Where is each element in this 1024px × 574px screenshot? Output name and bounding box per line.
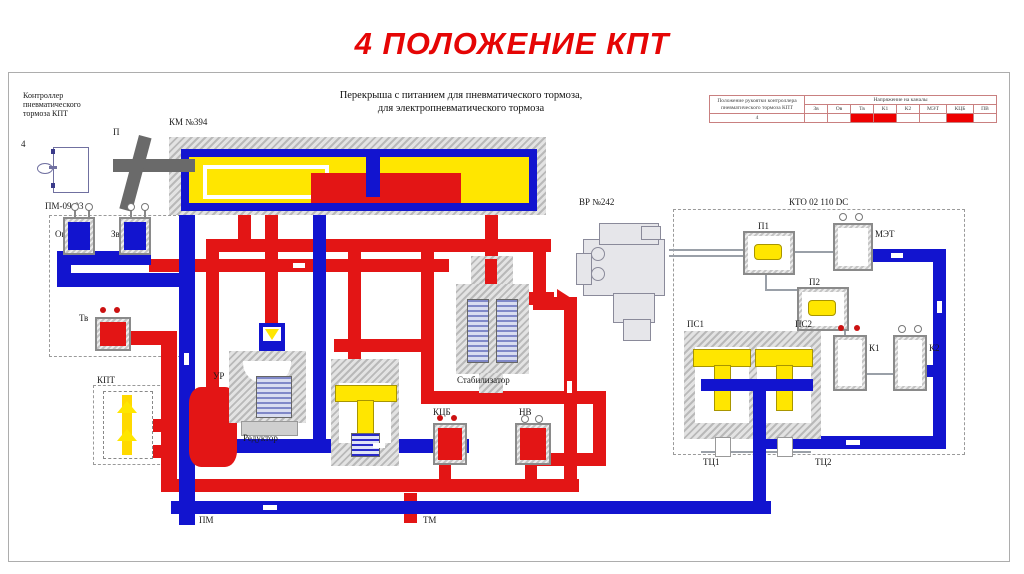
signal-line [789, 251, 835, 253]
valve-cap [127, 203, 135, 211]
pipe-segment [161, 331, 177, 492]
flow-tick [184, 353, 189, 365]
diagram-subtitle: Перекрыша с питанием для пневматического… [296, 89, 626, 115]
ur-label: УР [213, 371, 224, 381]
relay-piston-stem [357, 400, 374, 434]
valve-core [124, 222, 146, 250]
km394-red-channel [311, 173, 461, 203]
ps2-label: ПС2 [795, 319, 812, 329]
reduktor-spring [256, 376, 292, 418]
controller-caption: Контроллер пневматического тормоза КПТ [23, 91, 81, 119]
stabilizer-spring [496, 299, 518, 363]
p1-label: П1 [758, 221, 769, 231]
valve-core [100, 322, 126, 346]
valve-core [68, 222, 90, 250]
valve-core [438, 428, 462, 460]
signal-line [864, 373, 896, 375]
p2-spool [808, 300, 836, 316]
k1-label: К1 [869, 343, 880, 353]
flow-tick [937, 301, 942, 313]
pipe-segment-pm-main [171, 501, 771, 514]
valve-core [838, 228, 868, 266]
position-digit: 4 [21, 139, 26, 149]
valve-cap [839, 213, 847, 221]
pipe-segment [564, 297, 577, 492]
valve-core [838, 340, 862, 386]
p2-label: П2 [809, 277, 820, 287]
slide: 4 ПОЛОЖЕНИЕ КПТ Контроллер пневматическо… [0, 0, 1024, 574]
signal-line [765, 289, 799, 291]
vr242-label: ВР №242 [579, 197, 614, 207]
pipe-segment [533, 241, 546, 310]
pipe-segment [753, 381, 766, 508]
valve-cap [855, 213, 863, 221]
met-valve [833, 223, 873, 271]
valve-cap [71, 203, 79, 211]
valve-cap [85, 203, 93, 211]
kto-label: КТО 02 110 DC [789, 197, 848, 207]
km394-blue-divider [366, 149, 380, 197]
p1-spool [754, 244, 782, 260]
kpt-label: КПТ [97, 375, 115, 385]
valve-cap [100, 307, 106, 313]
flow-tick [263, 505, 277, 510]
pipe-segment [206, 252, 219, 389]
zv-valve [119, 217, 151, 255]
valve-cap [114, 307, 120, 313]
controller-stem [49, 166, 57, 169]
tc2-label: ТЦ2 [815, 457, 832, 467]
table-data-row: 4 [710, 114, 997, 123]
tc-port [777, 437, 793, 457]
valve-cap [437, 415, 443, 421]
signal-line [765, 273, 767, 289]
vr242-part [641, 226, 661, 240]
kcb-valve [433, 423, 467, 465]
km-handle-bar [113, 159, 195, 172]
signal-line [669, 255, 745, 257]
energized-cell-kcb [947, 114, 974, 123]
pipe-segment [334, 339, 434, 352]
flow-tick [567, 381, 572, 393]
table-header-right: Напряжение на каналы [805, 96, 997, 105]
pipe-segment [421, 391, 606, 404]
valve-core [898, 340, 922, 386]
p1-valve [743, 231, 795, 275]
pipe-segment [57, 251, 71, 287]
valve-cap [838, 325, 844, 331]
diagram-panel: Контроллер пневматического тормоза КПТ 4… [8, 72, 1010, 562]
vr242-part [623, 319, 651, 341]
slide-title: 4 ПОЛОЖЕНИЕ КПТ [0, 26, 1024, 62]
pm-label: ПМ [199, 515, 214, 525]
valve-cap [535, 415, 543, 423]
valve-cap [854, 325, 860, 331]
controller-handle-icon [53, 147, 89, 193]
flow-tick [293, 263, 305, 268]
km394-label: КМ №394 [169, 117, 207, 127]
tv-valve [95, 317, 131, 351]
controller-pin [51, 149, 55, 154]
table-position-cell: 4 [710, 114, 805, 123]
valve-cap [451, 415, 457, 421]
flow-tick [846, 440, 860, 445]
pipe-segment [161, 479, 579, 492]
table-header-left: Положение рукоятки контроллера пневматич… [710, 96, 805, 114]
stabilizer-label: Стабилизатор [457, 375, 510, 385]
reduktor-label: Редуктор [243, 433, 278, 443]
k1-valve [833, 335, 867, 391]
flow-tick [891, 253, 903, 258]
kpt-poppet [117, 429, 137, 441]
energized-cell-tv [851, 114, 874, 123]
reduktor-feed-cone [265, 329, 279, 340]
tc1-label: ТЦ1 [703, 457, 720, 467]
pipe-segment [238, 215, 251, 241]
vr242-part [576, 253, 592, 285]
valve-cap [914, 325, 922, 333]
pipe-segment [206, 239, 551, 252]
pipe-segment [421, 252, 434, 404]
k2-label: К2 [929, 343, 940, 353]
valve-cap [521, 415, 529, 423]
ps1-label: ПС1 [687, 319, 704, 329]
pipe-segment [57, 273, 179, 287]
tm-label: ТМ [423, 515, 436, 525]
tv-label: Тв [79, 313, 88, 323]
channel-voltage-table: Положение рукоятки контроллера пневматич… [709, 95, 997, 123]
signal-line [669, 249, 745, 251]
handle-p-label: П [113, 127, 120, 137]
energized-cell-k1 [874, 114, 897, 123]
flow-tick [373, 443, 385, 448]
ov-valve [63, 217, 95, 255]
valve-cap [141, 203, 149, 211]
vr242-knob [591, 247, 605, 261]
valve-core [520, 428, 546, 460]
nv-valve [515, 423, 551, 465]
kpt-poppet [117, 401, 137, 413]
pipe-segment [179, 215, 195, 525]
valve-cap [898, 325, 906, 333]
controller-pin [51, 183, 55, 188]
vr242-knob [591, 267, 605, 281]
stabilizer-spring [467, 299, 489, 363]
met-label: МЭТ [875, 229, 894, 239]
tc-port [715, 437, 731, 457]
pipe-segment [313, 215, 326, 453]
k2-valve [893, 335, 927, 391]
km-handle-lever [119, 135, 151, 212]
